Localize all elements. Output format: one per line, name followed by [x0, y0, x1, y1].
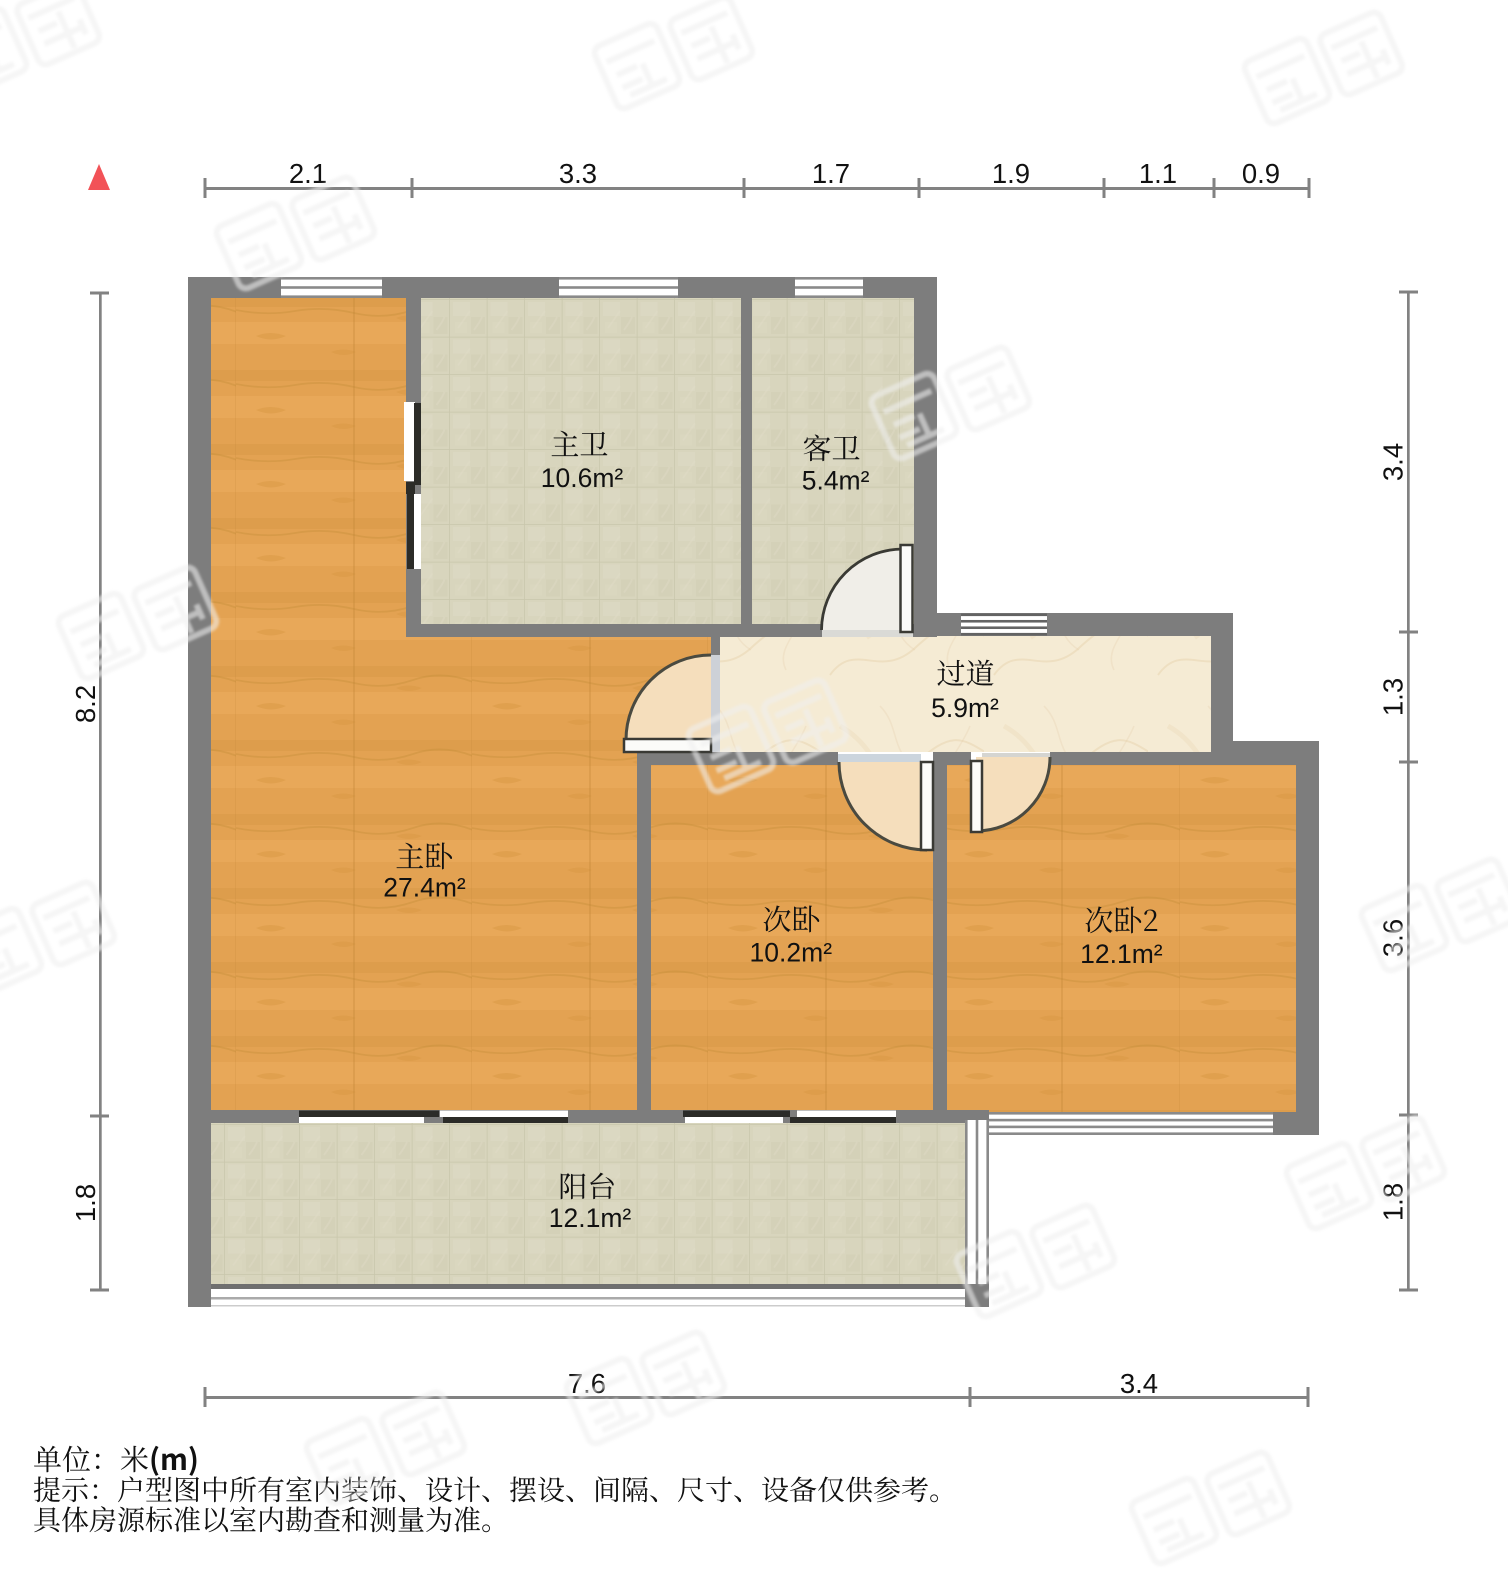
- svg-text:10.2m²: 10.2m²: [750, 938, 833, 968]
- svg-text:3.4: 3.4: [1378, 443, 1409, 481]
- svg-text:27.4m²: 27.4m²: [383, 873, 466, 903]
- svg-text:1.8: 1.8: [70, 1184, 101, 1222]
- svg-text:2.1: 2.1: [289, 158, 327, 189]
- svg-text:5.4m²: 5.4m²: [802, 466, 870, 496]
- svg-text:3.4: 3.4: [1120, 1368, 1158, 1399]
- svg-text:1.9: 1.9: [992, 158, 1030, 189]
- svg-text:10.6m²: 10.6m²: [541, 463, 624, 493]
- svg-text:8.2: 8.2: [70, 685, 101, 723]
- svg-text:0.9: 0.9: [1242, 158, 1280, 189]
- svg-text:12.1m²: 12.1m²: [1080, 939, 1163, 969]
- svg-text:5.9m²: 5.9m²: [931, 693, 999, 723]
- svg-text:1.1: 1.1: [1139, 158, 1177, 189]
- svg-text:1.3: 1.3: [1378, 678, 1409, 716]
- svg-text:12.1m²: 12.1m²: [549, 1203, 632, 1233]
- svg-text:1.7: 1.7: [812, 158, 850, 189]
- svg-text:3.3: 3.3: [559, 158, 597, 189]
